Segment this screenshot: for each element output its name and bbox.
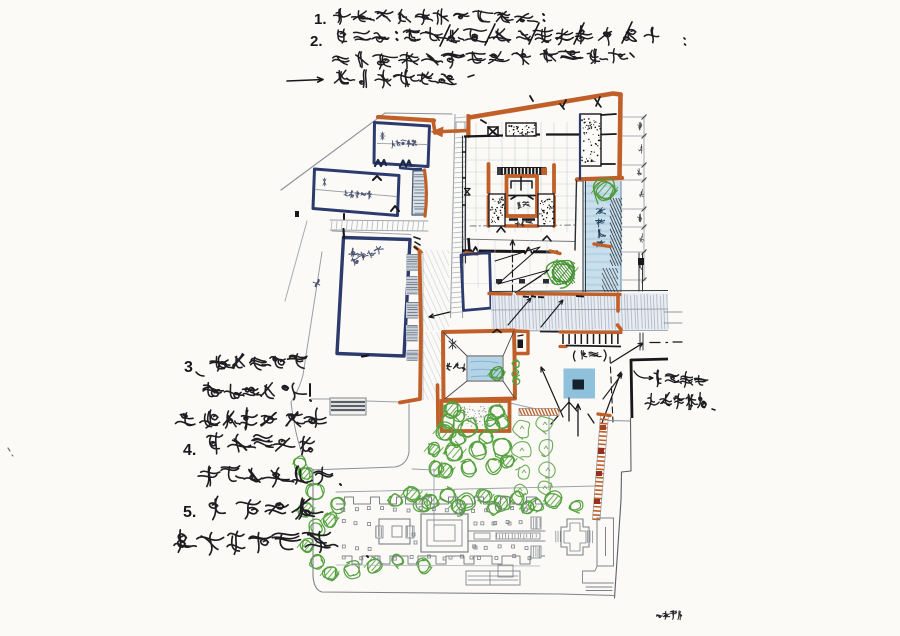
svg-text:1.: 1. <box>314 11 327 28</box>
svg-text:2.: 2. <box>310 33 323 50</box>
svg-text:5.: 5. <box>183 504 196 521</box>
svg-text:3: 3 <box>184 359 193 376</box>
svg-text:4.: 4. <box>183 442 196 459</box>
